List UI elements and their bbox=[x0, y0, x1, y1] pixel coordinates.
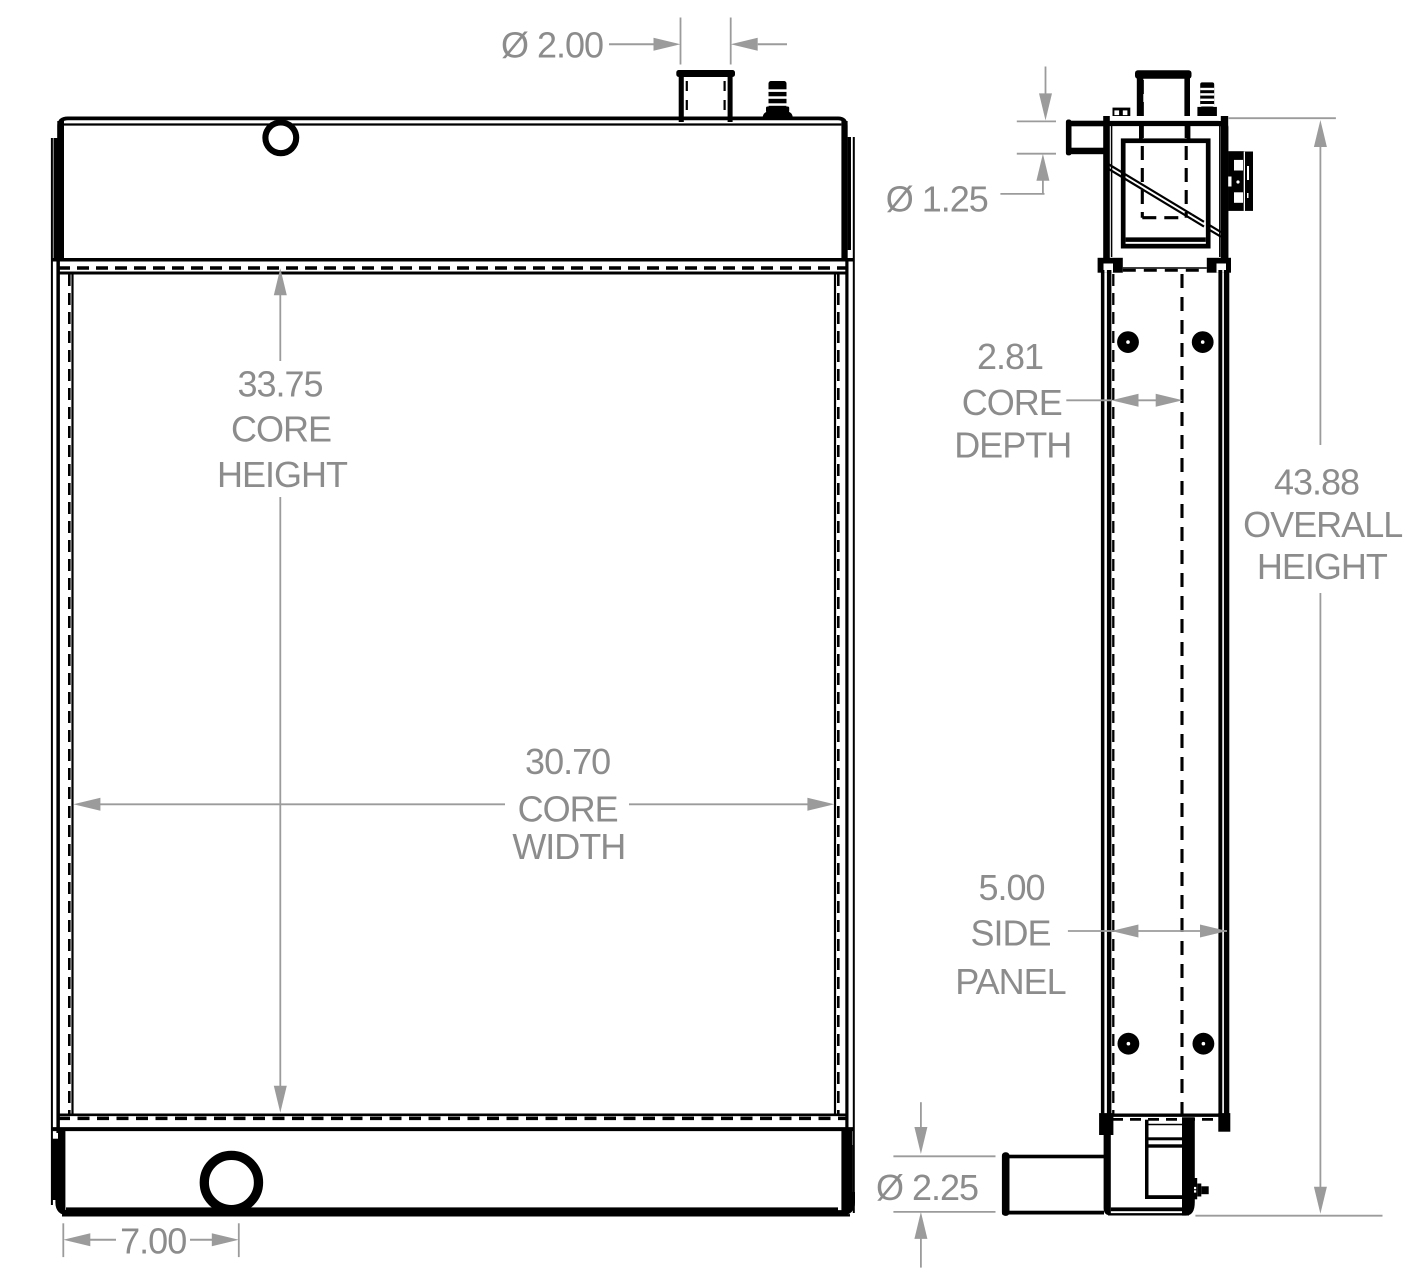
svg-text:PANEL: PANEL bbox=[955, 961, 1065, 1002]
svg-text:CORE: CORE bbox=[231, 409, 331, 450]
svg-text:30.70: 30.70 bbox=[525, 741, 610, 782]
svg-text:33.75: 33.75 bbox=[237, 364, 322, 405]
svg-text:43.88: 43.88 bbox=[1274, 462, 1359, 503]
svg-text:SIDE: SIDE bbox=[970, 913, 1050, 954]
svg-text:DEPTH: DEPTH bbox=[954, 424, 1071, 465]
svg-text:5.00: 5.00 bbox=[978, 867, 1044, 908]
svg-text:Ø 2.25: Ø 2.25 bbox=[876, 1167, 978, 1208]
svg-text:HEIGHT: HEIGHT bbox=[1257, 546, 1388, 587]
svg-text:CORE: CORE bbox=[518, 789, 618, 830]
svg-text:HEIGHT: HEIGHT bbox=[217, 454, 348, 495]
svg-text:7.00: 7.00 bbox=[120, 1221, 186, 1262]
svg-text:OVERALL: OVERALL bbox=[1243, 504, 1402, 545]
svg-text:Ø 1.25: Ø 1.25 bbox=[886, 179, 988, 220]
svg-text:WIDTH: WIDTH bbox=[512, 826, 625, 867]
svg-text:Ø 2.00: Ø 2.00 bbox=[501, 25, 603, 66]
svg-text:2.81: 2.81 bbox=[977, 336, 1043, 377]
svg-text:CORE: CORE bbox=[962, 382, 1062, 423]
